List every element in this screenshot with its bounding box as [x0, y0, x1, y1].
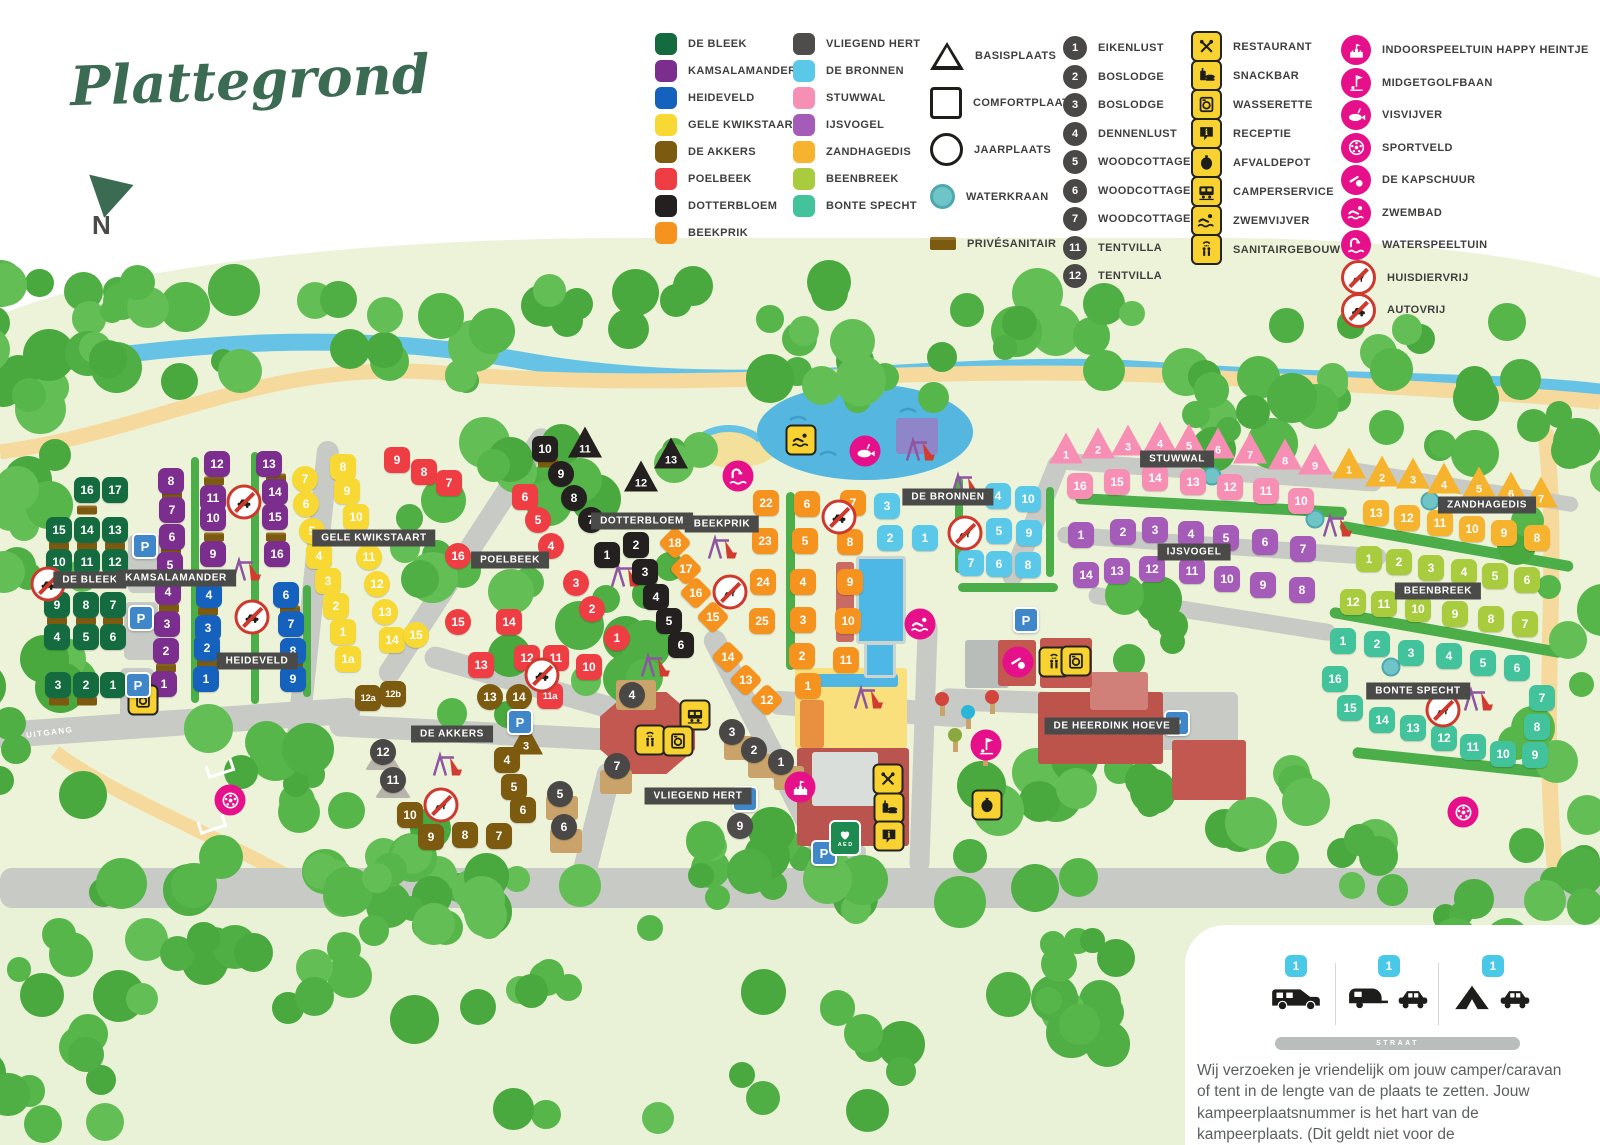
plot-ijsvogel-11: 11	[1179, 558, 1205, 584]
plot-poelbeek-14: 14	[496, 609, 522, 635]
plot-de-akkers-7: 7	[486, 823, 512, 849]
plot-stuwwal-15: 15	[1104, 469, 1130, 495]
plot-number: 11	[81, 555, 94, 569]
plot-heideveld-6: 6	[273, 582, 299, 608]
divider	[1438, 963, 1439, 1025]
tree	[396, 504, 424, 532]
plot-beenbreek-8: 8	[1478, 606, 1504, 632]
no-car-sign-icon	[227, 485, 262, 520]
plot-number: 1	[1078, 528, 1085, 542]
plot-number: 1	[922, 531, 929, 545]
color-swatch	[793, 60, 815, 82]
plot-number: 6	[804, 497, 811, 511]
plot-de-akkers-9: 9	[418, 824, 444, 850]
plot-gele-kwikstaart-8: 8	[330, 454, 356, 480]
plot-number: 1	[614, 631, 621, 645]
plot-gele-kwikstaart-15: 15	[403, 622, 429, 648]
plot-number: 11	[840, 653, 853, 667]
building	[856, 556, 906, 644]
no-dog-sign-icon	[1341, 260, 1376, 295]
area-label-beekprik: BEEKPRIK	[685, 516, 759, 533]
no-car-sign-icon	[822, 500, 857, 535]
tree	[126, 983, 158, 1015]
plot-de-akkers-4: 4	[494, 747, 520, 773]
tree	[362, 863, 392, 893]
plot-de-akkers-10: 10	[397, 802, 423, 828]
tree	[390, 995, 439, 1044]
legend-label: COMFORTPLAATS	[973, 97, 1077, 109]
plot-number: 16	[1073, 479, 1086, 493]
legend-amenity-midgetgolf: MIDGETGOLFBAAN	[1341, 67, 1589, 100]
plot-number: 13	[474, 658, 487, 672]
tree	[1266, 841, 1299, 874]
plot-kamsalamander-15: 15	[262, 504, 288, 530]
privesanitair-icon	[930, 237, 956, 250]
legend-plot-type-circle: JAARPLAATS	[930, 126, 1077, 173]
plot-number: 2	[1374, 637, 1381, 651]
no-dog-sign-icon	[948, 516, 983, 551]
plot-de-bleek-1: 1	[100, 672, 126, 698]
plot-number: 14	[512, 690, 525, 704]
plot-number: 15	[706, 610, 719, 624]
kapschuur-icon	[1003, 647, 1034, 678]
plot-beekprik-24: 24	[750, 569, 776, 595]
area-label-heideveld: HEIDEVELD	[217, 653, 298, 670]
legend-accommodation-6: 6WOODCOTTAGE 2	[1063, 177, 1201, 206]
plot-zandhagedis-13: 13	[1363, 500, 1389, 526]
tree	[727, 849, 772, 894]
plot-number: 2	[83, 678, 90, 692]
plot-number: 14	[80, 523, 93, 537]
wasserette-icon	[663, 726, 694, 757]
parking-icon: P	[132, 533, 158, 559]
plot-gele-kwikstaart-13: 13	[372, 599, 398, 625]
plot-number: 4	[653, 590, 660, 604]
plot-number: 15	[268, 510, 281, 524]
accommodation-number: 7	[614, 759, 621, 773]
plot-beenbreek-4: 4	[1451, 559, 1477, 585]
plot-number: 7	[1539, 691, 1546, 705]
legend-area-beekprik: BEEKPRIK	[655, 219, 800, 246]
plot-number: 13	[108, 523, 121, 537]
plot-number: 9	[1452, 607, 1459, 621]
number-circle: 6	[1063, 179, 1087, 203]
circle-icon	[930, 133, 963, 166]
plot-de-bleek-7: 7	[100, 592, 126, 618]
plot-number: 7	[302, 472, 309, 486]
color-swatch	[655, 141, 677, 163]
plot-number: 5	[996, 524, 1003, 538]
plot-dotterbloem-6: 6	[668, 632, 694, 658]
plot-beekprik-1: 1	[795, 673, 821, 699]
plot-dotterbloem-9: 9	[548, 461, 574, 487]
plot-number: 2	[1095, 445, 1101, 457]
plot-de-bleek-6: 6	[100, 624, 126, 650]
plot-beekprik-22: 22	[753, 490, 779, 516]
plot-number: 8	[340, 460, 347, 474]
plot-number: 8	[168, 474, 175, 488]
plot-ijsvogel-3: 3	[1142, 517, 1168, 543]
caravan-car-diagram: 1	[1347, 955, 1431, 1013]
minigolf-ball	[961, 705, 975, 719]
plot-number: 4	[54, 630, 61, 644]
plot-number: 12a	[361, 693, 376, 704]
plot-number: 1	[110, 678, 117, 692]
tree	[807, 260, 851, 304]
tree	[608, 309, 649, 350]
tree	[120, 265, 155, 300]
afvaldepot-icon	[972, 790, 1003, 821]
plot-number: 13	[1110, 564, 1123, 578]
plot-de-bleek-15: 15	[46, 517, 72, 543]
plot-kamsalamander-3: 3	[154, 611, 180, 637]
snackbar-icon	[1191, 60, 1222, 91]
area-label-vliegend-hert: VLIEGEND HERT	[645, 788, 752, 805]
plot-number: 15	[409, 628, 422, 642]
plot-zandhagedis-9: 9	[1491, 520, 1517, 546]
plot-number: 1	[604, 548, 611, 562]
plot-bonte-specht-1: 1	[1330, 628, 1356, 654]
legend-amenity-kapschuur: DE KAPSCHUUR	[1341, 164, 1589, 197]
plot-bonte-specht-10: 10	[1490, 741, 1516, 767]
plot-number: 16	[270, 547, 283, 561]
plot-kamsalamander-12: 12	[204, 451, 230, 477]
area-label-dotterbloem: DOTTERBLOEM	[591, 513, 693, 530]
plot-number: 8	[571, 491, 578, 505]
legend-area-de-bleek: DE BLEEK	[655, 30, 800, 57]
legend-label: SNACKBAR	[1233, 70, 1299, 82]
plot-number: 2	[204, 641, 211, 655]
plot-number: 15	[1343, 701, 1356, 715]
plot-gele-kwikstaart-3: 3	[315, 568, 341, 594]
plot-number: 14	[1079, 568, 1092, 582]
tree	[688, 863, 713, 888]
plot-number: 9	[737, 819, 744, 833]
legend-label: TENTVILLA	[1098, 270, 1162, 282]
plot-number: 2	[589, 602, 596, 616]
plot-number: 5	[83, 630, 90, 644]
plot-ijsvogel-14: 14	[1073, 562, 1099, 588]
plot-number: 14	[502, 615, 515, 629]
plot-de-bleek-16: 16	[74, 477, 100, 503]
tree	[1377, 874, 1409, 906]
plot-number: 4	[206, 588, 213, 602]
plot-number: 12	[1346, 595, 1359, 609]
plot-kamsalamander-13: 13	[256, 451, 282, 477]
legend-accommodation-1: 1EIKENLUST	[1063, 34, 1201, 63]
plot-de-bronnen-6: 6	[986, 551, 1012, 577]
legend-facilities: RESTAURANTSNACKBARWASSERETTEiRECEPTIEAFV…	[1191, 32, 1340, 264]
plot-de-bronnen-9: 9	[1016, 520, 1042, 546]
tree	[789, 316, 819, 346]
legend-label: INDOORSPEELTUIN HAPPY HEINTJE	[1382, 44, 1589, 56]
plot-number: 12	[1223, 480, 1236, 494]
tree	[1567, 795, 1600, 835]
legend-facility-camperservice: CAMPERSERVICE	[1191, 177, 1340, 206]
plot-de-bleek-17: 17	[102, 477, 128, 503]
plot-number: 13	[665, 455, 677, 467]
plot-beenbreek-2: 2	[1386, 549, 1412, 575]
tree	[686, 821, 726, 861]
plot-number: 10	[206, 511, 219, 525]
plot-beekprik-3: 3	[790, 607, 816, 633]
legend-label: AFVALDEPOT	[1233, 157, 1311, 169]
plot-number: 14	[721, 650, 734, 664]
legend-accommodations: 1EIKENLUST2BOSLODGE3BOSLODGE4DENNENLUST5…	[1063, 34, 1201, 291]
legend-label: HEIDEVELD	[688, 92, 755, 104]
plot-de-bleek-8: 8	[73, 592, 99, 618]
plot-number: 7	[110, 598, 117, 612]
plot-ijsvogel-13: 13	[1104, 558, 1130, 584]
plot-de-bleek-2: 2	[73, 672, 99, 698]
plot-number: 13	[483, 690, 496, 704]
plot-number: 13	[1186, 475, 1199, 489]
plot-number: 10	[841, 614, 854, 628]
plot-vliegend-hert-9: 9	[727, 813, 753, 839]
plot-number: 1	[1366, 552, 1373, 566]
plot-number: 10	[1220, 572, 1233, 586]
plot-heideveld-7: 7	[278, 611, 304, 637]
pitch-number-badge: 1	[1482, 955, 1504, 977]
plot-number: 6	[1514, 661, 1521, 675]
legend-label: BEENBREEK	[826, 173, 899, 185]
plot-number: 5	[535, 513, 542, 527]
number-circle: 2	[1063, 65, 1087, 89]
plot-beenbreek-11: 11	[1371, 591, 1397, 617]
number-circle: 5	[1063, 150, 1087, 174]
tree	[1097, 939, 1135, 977]
plot-zandhagedis-12: 12	[1394, 505, 1420, 531]
plot-number: 12	[108, 555, 121, 569]
color-swatch	[655, 222, 677, 244]
area-label-de-heerdink-hoeve: DE HEERDINK HOEVE	[1045, 718, 1180, 735]
tree	[612, 269, 659, 316]
zwem-icon	[786, 425, 817, 456]
plot-bonte-specht-6: 6	[1504, 655, 1530, 681]
plot-stuwwal-14: 14	[1142, 465, 1168, 491]
plot-number: 11	[1260, 484, 1273, 498]
restaurant-icon	[1191, 31, 1222, 62]
tree	[445, 359, 477, 391]
area-label-ijsvogel: IJSVOGEL	[1158, 544, 1231, 561]
plot-number: 10	[403, 808, 416, 822]
street-pill: STRAAT	[1275, 1037, 1520, 1050]
plot-number: 1	[805, 679, 812, 693]
accommodation-marker-6: 6	[551, 814, 577, 840]
plot-number: 9	[558, 467, 565, 481]
accommodation-marker-11: 11	[380, 767, 406, 793]
plot-number: 17	[679, 562, 692, 576]
plot-number: 1	[1063, 450, 1069, 462]
playground	[705, 535, 739, 566]
legend-label: ZWEMVIJVER	[1233, 215, 1310, 227]
legend-label: TENTVILLA	[1098, 242, 1162, 254]
plot-ijsvogel-2: 2	[1110, 519, 1136, 545]
tree	[68, 1037, 104, 1073]
plot-number: 6	[283, 588, 290, 602]
tree	[551, 305, 583, 337]
legend-facility-sanitair: SANITAIRGEBOUW	[1191, 235, 1340, 264]
privesanitair-bar	[77, 506, 97, 515]
zwem-icon	[1341, 198, 1371, 228]
plot-number: 5	[666, 614, 673, 628]
plot-number: 3	[573, 576, 580, 590]
plot-number: 11	[1467, 740, 1480, 754]
legend-accommodation-3: 3BOSLODGE	[1063, 91, 1201, 120]
color-swatch	[793, 33, 815, 55]
legend-label: POELBEEK	[688, 173, 752, 185]
plot-beenbreek-10: 10	[1405, 596, 1431, 622]
legend-label: DENNENLUST	[1098, 128, 1177, 140]
plot-number: 1	[1346, 465, 1352, 477]
divider	[1335, 963, 1336, 1025]
accommodation-number: 11	[387, 773, 400, 787]
legend-amenity-sportveld: SPORTVELD	[1341, 132, 1589, 165]
page-title: Plattegrond	[69, 42, 431, 119]
minigolf-ball	[935, 692, 949, 706]
plot-number: 7	[1300, 542, 1307, 556]
plot-zandhagedis-11: 11	[1427, 510, 1453, 536]
tree	[637, 915, 663, 941]
legend-facility-restaurant: RESTAURANT	[1191, 32, 1340, 61]
plot-gele-kwikstaart-10: 10	[343, 504, 369, 530]
tree	[741, 969, 786, 1014]
plot-stuwwal-16: 16	[1067, 473, 1093, 499]
plot-number: 2	[1396, 555, 1403, 569]
tree	[184, 704, 233, 753]
no-dog-sign-icon	[713, 575, 748, 610]
legend-plot-types: BASISPLAATSCOMFORTPLAATSJAARPLAATSWATERK…	[930, 32, 1077, 267]
plot-ijsvogel-9: 9	[1250, 572, 1276, 598]
visvijver-icon	[850, 436, 881, 467]
tree	[208, 264, 260, 316]
plot-number: 14	[268, 485, 281, 499]
plot-number: 6	[1262, 535, 1269, 549]
plot-number: 12	[1437, 731, 1450, 745]
plot-de-bleek-14: 14	[74, 517, 100, 543]
parking-icon: P	[507, 709, 533, 735]
plot-poelbeek-10: 10	[576, 654, 602, 680]
plot-number: 9	[1501, 526, 1508, 540]
plot-number: 4	[800, 575, 807, 589]
legend-label: BEEKPRIK	[688, 227, 748, 239]
tree	[437, 698, 467, 728]
plot-bonte-specht-5: 5	[1470, 650, 1496, 676]
accommodation-marker-1: 1	[768, 749, 794, 775]
legend-area-heideveld: HEIDEVELD	[655, 84, 800, 111]
plot-poelbeek-6: 6	[512, 484, 538, 510]
color-swatch	[655, 87, 677, 109]
sportveld-icon	[215, 785, 246, 816]
tree	[86, 1103, 124, 1141]
plot-beekprik-4: 4	[790, 569, 816, 595]
plot-number: 7	[968, 556, 975, 570]
plot-de-bronnen-10: 10	[1015, 486, 1041, 512]
plot-number: 9	[1312, 461, 1318, 473]
legend-label: SANITAIRGEBOUW	[1233, 244, 1340, 256]
area-label-bonte-specht: BONTE SPECHT	[1366, 683, 1470, 700]
tree	[1182, 401, 1209, 428]
tree	[366, 332, 403, 369]
plot-number: 7	[169, 503, 176, 517]
plot-number: 12	[760, 693, 773, 707]
plot-gele-kwikstaart-1: 1	[330, 619, 356, 645]
indoorspeeltuin-icon	[1341, 35, 1371, 65]
compass-north-label: N	[92, 210, 126, 241]
plot-kamsalamander-14: 14	[262, 479, 288, 505]
plot-number: 15	[1110, 475, 1123, 489]
tree	[320, 281, 356, 317]
receptie-icon: i	[874, 821, 905, 852]
legend-area-de-akkers: DE AKKERS	[655, 138, 800, 165]
plot-gele-kwikstaart-1a: 1a	[335, 646, 361, 672]
wasserette-icon	[1191, 89, 1222, 120]
legend-label: STUWWAL	[826, 92, 886, 104]
plot-number: 6	[110, 630, 117, 644]
plot-number: 4	[1461, 565, 1468, 579]
legend-label: RECEPTIE	[1233, 128, 1291, 140]
legend-label: SPORTVELD	[1382, 142, 1453, 154]
visvijver-icon	[1341, 100, 1371, 130]
triangle-icon	[930, 42, 964, 70]
plot-kamsalamander-16: 16	[264, 541, 290, 567]
tree	[1059, 858, 1098, 897]
plot-number: 1a	[341, 652, 354, 666]
plot-poelbeek-13: 13	[468, 652, 494, 678]
plot-number: 10	[1021, 492, 1034, 506]
plot-number: 12	[1145, 562, 1158, 576]
plot-beenbreek-6: 6	[1514, 567, 1540, 593]
plot-zandhagedis-10: 10	[1459, 516, 1485, 542]
legend-area-vliegend-hert: VLIEGEND HERT	[793, 30, 920, 57]
legend-label: AUTOVRIJ	[1387, 304, 1446, 316]
tree	[1456, 366, 1494, 404]
legend-label: WATERSPEELTUIN	[1382, 239, 1487, 251]
legend-label: DE BRONNEN	[826, 65, 904, 77]
legend-amenity-indoorspeeltuin: INDOORSPEELTUIN HAPPY HEINTJE	[1341, 34, 1589, 67]
tree	[1236, 395, 1269, 428]
color-swatch	[793, 87, 815, 109]
plot-heideveld-9: 9	[280, 666, 306, 692]
plot-dotterbloem-4: 4	[643, 584, 669, 610]
color-swatch	[793, 114, 815, 136]
number-circle: 12	[1063, 264, 1087, 288]
afvaldepot-icon	[1191, 147, 1222, 178]
midgetgolf-icon	[971, 730, 1002, 761]
plot-number: 5	[802, 534, 809, 548]
no-car-sign-icon	[235, 600, 270, 635]
accommodation-marker-4: 4	[619, 682, 645, 708]
plot-number: 1	[161, 677, 168, 691]
plot-number: 7	[446, 476, 453, 490]
plot-bonte-specht-15: 15	[1337, 695, 1363, 721]
legend-label: CAMPERSERVICE	[1233, 186, 1334, 198]
plot-stuwwal-10: 10	[1288, 488, 1314, 514]
tree	[1454, 879, 1493, 918]
legend-amenities: INDOORSPEELTUIN HAPPY HEINTJEMIDGETGOLFB…	[1341, 34, 1589, 327]
plot-number: 8	[1299, 583, 1306, 597]
tree	[660, 284, 693, 317]
plot-number: 1	[340, 625, 347, 639]
legend-label: GELE KWIKSTAART	[688, 119, 800, 131]
legend-label: WOODCOTTAGE 2	[1098, 185, 1201, 197]
plot-number: 8	[462, 828, 469, 842]
tree	[934, 876, 985, 927]
plot-number: 3	[1410, 475, 1416, 487]
plot-de-bleek-3: 3	[45, 672, 71, 698]
plot-number: 4	[504, 753, 511, 767]
plot-number: 6	[520, 803, 527, 817]
